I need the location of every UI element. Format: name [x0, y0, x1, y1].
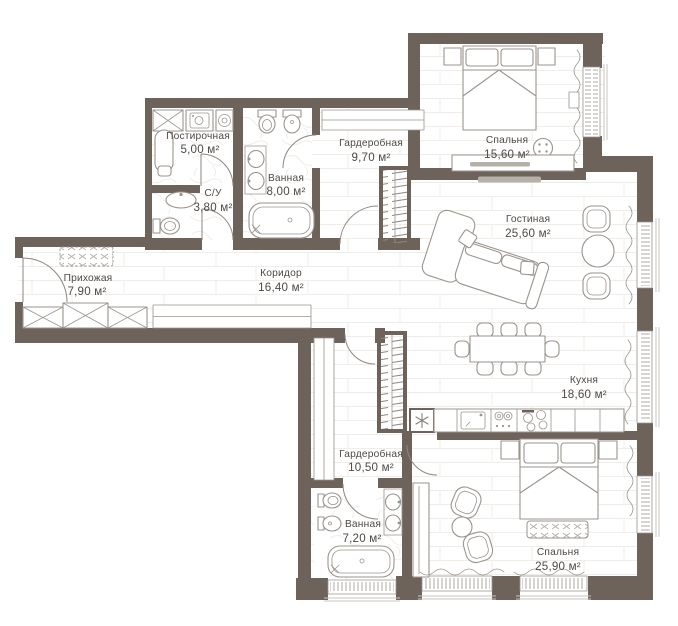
sink-icon [245, 146, 266, 194]
closet-icon [381, 168, 409, 245]
svg-text:7,20 м²: 7,20 м² [342, 532, 381, 545]
wardrobe-rail-icon [322, 110, 424, 130]
pillow-icon [520, 261, 534, 275]
window-icon [324, 580, 400, 601]
room-label: Коридор 16,40 м² [258, 268, 304, 294]
window-icon [637, 472, 659, 537]
nightstand-icon [444, 48, 461, 65]
bench-icon [527, 521, 588, 538]
nightstand-icon [538, 48, 555, 65]
armchair-icon [583, 273, 610, 299]
svg-text:9,70 м²: 9,70 м² [351, 151, 390, 164]
floor-plan-drawing: Постирочная 5,00 м² С/У 3,80 м² Ванная 8… [0, 0, 678, 626]
laundry-cabinet-icon [153, 110, 183, 131]
window-icon [516, 576, 591, 599]
sink-icon [384, 489, 402, 535]
vent-shaft-icon [410, 409, 434, 432]
room-label: Ванная 8,00 м² [266, 173, 305, 198]
window-icon [637, 218, 659, 292]
svg-text:25,90 м²: 25,90 м² [535, 560, 581, 573]
coffee-table-icon [582, 235, 614, 267]
bidet-icon [283, 110, 301, 133]
side-table-icon [452, 517, 472, 537]
window-icon [418, 576, 496, 599]
entry-mat-icon [60, 247, 113, 266]
svg-text:Кухня: Кухня [570, 375, 598, 386]
tv-icon [478, 177, 541, 183]
room-label: Спальня 25,90 м² [535, 547, 581, 573]
svg-text:5,00 м²: 5,00 м² [180, 143, 219, 156]
window-icon [637, 327, 659, 427]
svg-text:Коридор: Коридор [260, 268, 302, 279]
closet-icon [413, 483, 429, 577]
svg-text:Ванная: Ванная [268, 173, 304, 184]
wardrobe-rail-icon [153, 305, 311, 328]
closet-icon [379, 333, 405, 431]
svg-text:18,60 м²: 18,60 м² [561, 388, 607, 401]
tv-icon [470, 162, 530, 167]
svg-text:15,60 м²: 15,60 м² [484, 148, 530, 161]
svg-text:Прихожая: Прихожая [64, 273, 113, 284]
svg-text:Спальня: Спальня [537, 547, 579, 558]
sink-icon [166, 192, 196, 208]
toilet-icon [153, 218, 180, 234]
svg-text:С/У: С/У [204, 188, 222, 199]
toilet-icon [318, 493, 341, 508]
bathtub-icon [328, 546, 394, 577]
svg-text:7,90 м²: 7,90 м² [67, 285, 106, 298]
closet-box-icon [23, 303, 147, 328]
wardrobe-rail-icon [314, 338, 334, 480]
washing-machine-icon [186, 110, 213, 131]
nightstand-icon [501, 441, 519, 459]
svg-text:Спальня: Спальня [486, 135, 528, 146]
room-label: Спальня 15,60 м² [484, 135, 530, 161]
floor-plan: Постирочная 5,00 м² С/У 3,80 м² Ванная 8… [0, 0, 678, 626]
room-label: Прихожая 7,90 м² [64, 273, 113, 298]
room-label: Гардеробная 10,50 м² [339, 448, 403, 474]
bathtub-icon [249, 203, 314, 238]
svg-text:3,80 м²: 3,80 м² [193, 201, 232, 214]
svg-text:8,00 м²: 8,00 м² [266, 185, 305, 198]
svg-text:Гардеробная: Гардеробная [339, 448, 403, 460]
room-label: Ванная 7,20 м² [342, 519, 381, 545]
svg-text:10,50 м²: 10,50 м² [348, 461, 394, 474]
nightstand-icon [599, 441, 617, 459]
svg-text:Гостиная: Гостиная [506, 214, 550, 225]
toilet-icon [258, 110, 276, 133]
dryer-icon [216, 110, 233, 131]
bidet-icon [318, 516, 341, 531]
armchair-icon [583, 206, 610, 232]
svg-text:Гардеробная: Гардеробная [339, 137, 403, 149]
kitchen-counter-icon [434, 409, 624, 432]
svg-text:Ванная: Ванная [345, 519, 381, 530]
radiator-icon [569, 92, 579, 108]
svg-text:16,40 м²: 16,40 м² [258, 281, 304, 294]
svg-text:25,60 м²: 25,60 м² [505, 227, 551, 240]
room-label: Гостиная 25,60 м² [505, 214, 551, 240]
svg-text:Постирочная: Постирочная [166, 131, 230, 142]
